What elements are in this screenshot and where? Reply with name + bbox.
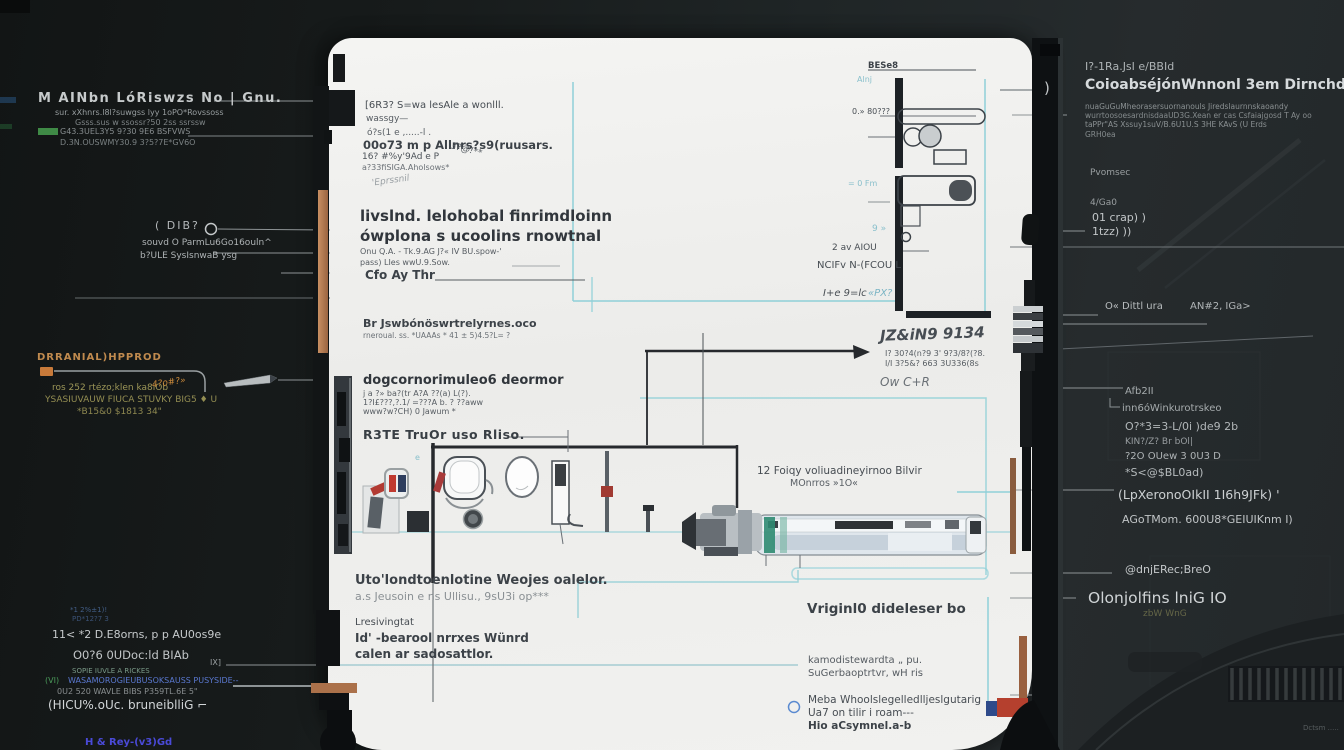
label-right-dnjerec: @dnjERec;BreO — [1125, 564, 1211, 576]
boring-machine — [682, 505, 986, 568]
label-panel-top1: [6R3? S=wa lesAle a wonlll. — [365, 101, 504, 112]
label-right-faint-olive: zbW WnG — [1143, 610, 1187, 620]
label-left-sub3: G43.3UEL3Y5 9?30 9E6 BSFVWS — [60, 128, 190, 137]
label-right-body4: GRH0ea — [1085, 131, 1116, 139]
label-panel-calen: calen ar sadosattlor. — [355, 648, 493, 661]
label-panel-script-sub1: I? 30?4(n?9 3' 9?3/8?(?8. — [885, 350, 985, 359]
floor-plan — [895, 78, 991, 318]
label-right-body3: taPPr"AS Xssuy1suV/B.6U1U.S 3HE KAvS (U … — [1085, 121, 1267, 129]
label-panel-script2: Ow C+R — [880, 376, 930, 389]
wall-arrowhead-icon — [853, 345, 870, 359]
blue-block-icon — [986, 701, 997, 716]
label-panel-cfo: Cfo Ay Thr — [365, 269, 435, 282]
label-right-afb2: Afb2II — [1125, 387, 1154, 398]
diagram-canvas: M AINbn LóRiswzs No | Gnu. sur. xXhnrs.l… — [0, 0, 1344, 750]
label-panel-top5: 16? #%y'9Ad e P — [362, 153, 439, 163]
right-edge-hardware — [986, 38, 1063, 750]
label-bottomleft-4: 0U2 520 WAVLE BIBS P359TL.6E 5" — [57, 688, 198, 697]
label-right-crap1: 01 crap) ) — [1092, 212, 1146, 224]
label-right-big2: AGoTMom. 600U8*GEIUIKnm I) — [1122, 514, 1293, 526]
label-panel-small2: pass) LIes wwU.9.Sow. — [360, 259, 450, 268]
label-right-list3: KIN?/Z? Br bOl| — [1125, 438, 1193, 448]
label-panel-dim2: 2 av AIOU — [832, 244, 877, 254]
label-right-corner-tiny: Dctsm ..... — [1303, 725, 1339, 733]
label-panel-top6: a?33fiSIGA.Aholsows* — [362, 164, 449, 173]
label-olive-line3: *B15&0 $1813 34" — [77, 408, 162, 418]
label-olive-line1: ros 252 rtézo;klen ka8iOb — [52, 384, 168, 394]
label-panel-r3te: R3TE TruOr uso Rliso. — [363, 428, 525, 442]
label-left-mid2: b?ULE SysIsnwaB ysg — [140, 252, 237, 262]
label-right-body1: nuaGuGuMheorasersuornanouls Jiredslaurnn… — [1085, 103, 1288, 111]
label-right-list2: O?*3=3-L/0i )de9 2b — [1125, 421, 1238, 433]
label-panel-heading2: ówplona s ucoolins rnowtnal — [360, 228, 601, 244]
orange-tab-icon — [40, 367, 53, 376]
label-panel-heading1: livslnd. lelohobal finrimdloinn — [360, 208, 612, 224]
label-panel-small1: Onu Q.A. - Tk.9.AG J?« IV BU.spow-' — [360, 248, 502, 257]
label-panel-meba2: Ua7 on tilir i roam--- — [808, 708, 914, 719]
label-panel-alnj: Alnj — [857, 76, 872, 85]
label-faint-blue2: PD*12?7 3 — [72, 616, 109, 624]
label-panel-top2: wassgy— — [366, 115, 408, 125]
label-panel-lres: Lresivingtat — [355, 618, 414, 629]
label-right-pvomsec: Pvomsec — [1090, 169, 1130, 179]
label-panel-script-sub2: I/I 3?5&? 663 3U336(8s — [885, 360, 979, 369]
label-right-crap2: 1tzz) )) — [1092, 226, 1131, 238]
label-right-kicker: I?-1Ra.JsI e/BBId — [1085, 61, 1174, 73]
label-panel-monrros: MOnrros »1O« — [790, 479, 858, 489]
label-panel-id: Id' -bearool nrrxes Wünrd — [355, 632, 529, 645]
label-faint-blue1: *1 2%±1)! — [70, 607, 107, 615]
label-link-text: WASAMOROGIEUBUSOKSAUSS PUSYSIDE-- — [68, 677, 238, 686]
label-panel-dog-sub3: www?w?CH) 0 Jawum * — [363, 408, 456, 417]
label-bottomleft-blue: H & Rey-(v3)Gd — [85, 738, 172, 749]
label-right-an2: AN#2, IGa> — [1190, 302, 1251, 313]
label-right-list5: *S<@$BL0ad) — [1125, 467, 1203, 479]
left-edge-hardware — [311, 54, 357, 750]
label-right-dittl: O« Dittl ura — [1105, 302, 1163, 313]
label-panel-br: Br Jswbónöswrtrelyrnes.oco — [363, 318, 537, 330]
label-paren-glyph: ) — [1044, 80, 1050, 96]
label-link-prefix: (VI) — [45, 677, 59, 686]
label-panel-uto-sub: a.s Jeusoin e ns Ullisu., 9sU3i op*** — [355, 591, 549, 603]
target-circle-icon — [206, 224, 217, 235]
fixtures — [363, 451, 654, 544]
label-panel-kamo2: SuGerbaoptrtvr, wH ris — [808, 669, 923, 680]
label-right-4ga0: 4/Ga0 — [1090, 199, 1117, 209]
pen-icon — [224, 375, 277, 387]
label-orange-heading: DRRANIAL)HPPROD — [37, 353, 162, 364]
label-olive-line2: YSASIUVAUW FIUCA STUVKY BIG5 ♦ U — [45, 396, 217, 406]
label-right-title: CoioabséjónWnnonl 3em Dirnchd mniexa — [1085, 78, 1344, 93]
label-bottomleft-2: O0?6 0UDoc:ld BIAb — [73, 649, 189, 661]
label-right-list1: inn6óWinkurotrskeo — [1122, 404, 1222, 415]
label-bottomleft-3: SOPIE IUVLE A RICKES — [72, 668, 150, 676]
label-right-list4: ?2O OUew 3 0U3 D — [1125, 452, 1221, 463]
label-panel-dim1: 0.» 80??? — [852, 108, 890, 117]
label-bottomleft-5: (HICU%.oUc. bruneiblliG ⌐ — [48, 699, 207, 712]
label-right-olonjol: Olonjolfins lniG IO — [1088, 590, 1227, 607]
ring-icon — [789, 702, 800, 713]
label-panel-uto: Uto'londtoenlotine Weojes oalelor. — [355, 574, 608, 588]
label-left-sub4: D.3N.OUSWMY30.9 3?5?7E*GV6O — [60, 139, 195, 148]
label-panel-dog: dogcornorimuleo6 deormor — [363, 374, 564, 388]
label-ix-glyph: IX] — [210, 659, 221, 668]
label-bottomleft-1: 11< *2 D.E8orns, p p AU0os9e — [52, 629, 221, 641]
label-panel-ncifv: NCIFv N-(FCOU L — [817, 261, 901, 272]
label-panel-vriginl: Vriginl0 dideleser bo — [807, 602, 966, 617]
label-right-big1: (LpXeronoOIkII 1I6h9JFk) ' — [1118, 488, 1280, 502]
copper-bar-icon — [318, 190, 328, 353]
label-panel-script1: JZ&iN9 9134 — [880, 324, 985, 344]
label-dib-callout: ( DIB? — [155, 220, 200, 232]
label-right-body2: wurrtoosoesardnisdaaUD3G.Xean er cas Csf… — [1085, 112, 1312, 120]
label-panel-br-sub: rneroual. ss. *UAAAs * 41 ± 5)4.5?L= ? — [363, 332, 510, 340]
label-panel-ie: I+e 9=lc — [823, 289, 867, 300]
label-panel-kamo1: kamodistewardta „ pu. — [808, 656, 922, 667]
label-left-mid1: souvd O ParmLu6Go16ouln^ — [142, 239, 272, 249]
label-panel-e-cyan: e — [415, 454, 420, 463]
label-panel-px-cyan: «PX? — [868, 289, 892, 300]
label-panel-9-cyan: 9 » — [872, 225, 886, 235]
label-panel-meba3: Hio aCsymnel.a-b — [808, 721, 911, 732]
label-panel-foiqy: 12 Foiqy voliuadineyirnoo Bilvir — [757, 466, 922, 477]
label-panel-fm-cyan: = 0 Fm — [848, 180, 877, 189]
label-panel-meba1: Meba Whoolslegelledlljeslgutarig — [808, 695, 981, 706]
label-panel-bese8: BESe8 — [868, 62, 898, 71]
coupler-icon — [1013, 306, 1043, 353]
label-left-title: M AINbn LóRiswzs No | Gnu. — [38, 92, 282, 106]
green-bar-icon — [38, 128, 58, 135]
label-left-sub1: sur. xXhnrs.l8l?suwgss lyy 1oPO*Rovssoss — [55, 109, 224, 118]
